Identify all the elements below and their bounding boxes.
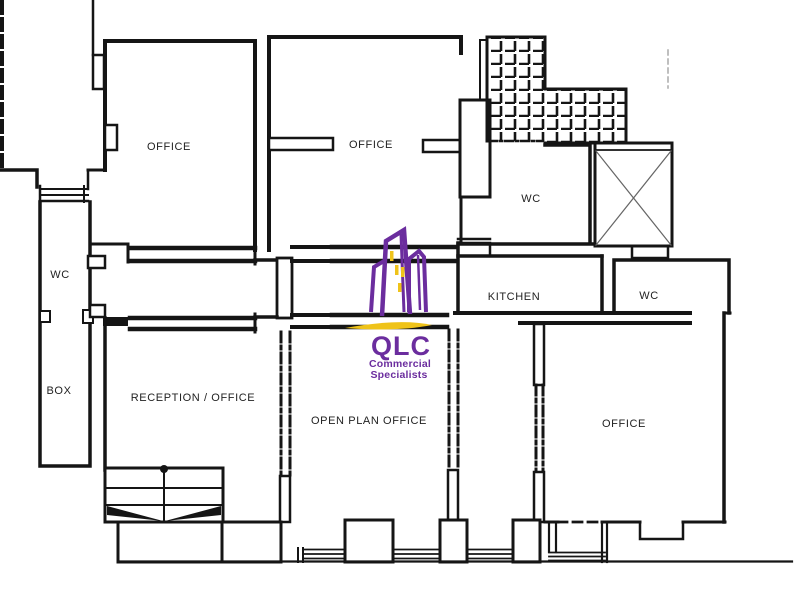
room-label-reception-office: RECEPTION / OFFICE xyxy=(131,392,255,404)
elevator-x-icon xyxy=(595,143,672,246)
logo-acronym: QLC xyxy=(371,333,431,360)
room-label-kitchen: KITCHEN xyxy=(488,291,540,303)
room-label-wc-left: WC xyxy=(50,269,70,281)
room-label-wc-top: WC xyxy=(521,193,541,205)
room-label-office-top-left: OFFICE xyxy=(147,141,191,153)
floor-plan-svg xyxy=(0,0,800,610)
walls xyxy=(0,0,792,562)
logo-buildings-icon xyxy=(371,230,426,316)
floor-plan: OFFICE OFFICE WC WC BOX RECEPTION / OFFI… xyxy=(0,0,800,610)
stair-hatch-area xyxy=(487,37,545,141)
room-label-box: BOX xyxy=(46,385,71,397)
room-label-office-right: OFFICE xyxy=(602,418,646,430)
stair-hatch-area-2 xyxy=(545,89,626,143)
room-label-open-plan-office: OPEN PLAN OFFICE xyxy=(311,415,427,427)
stairs-icon xyxy=(105,465,223,522)
logo-subtitle-line2: Specialists xyxy=(370,370,427,381)
room-label-office-top-middle: OFFICE xyxy=(349,139,393,151)
room-label-wc-right: WC xyxy=(639,290,659,302)
